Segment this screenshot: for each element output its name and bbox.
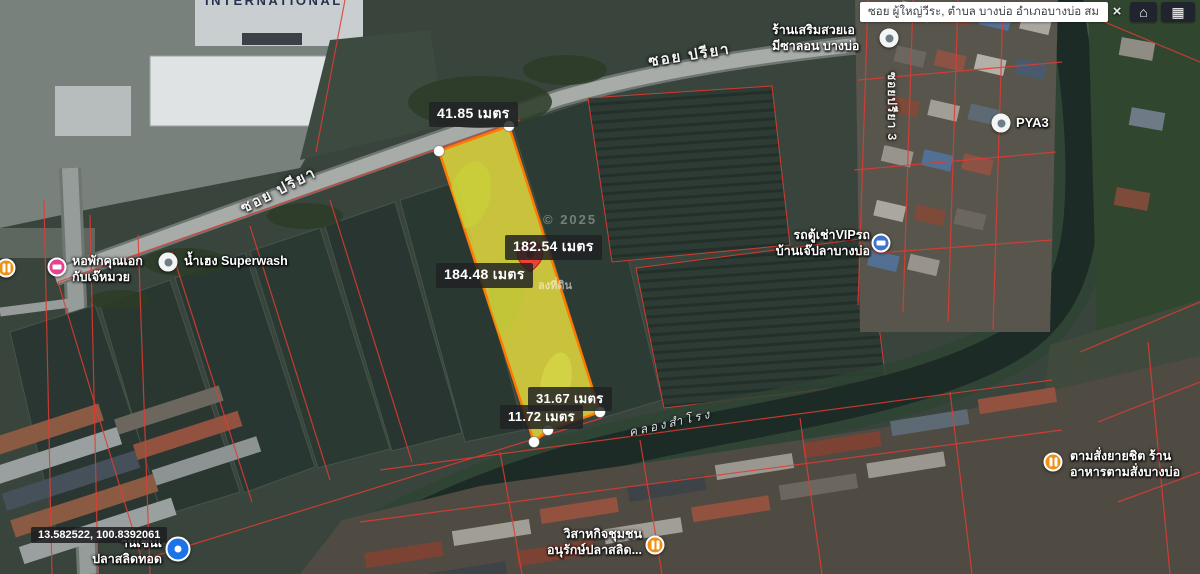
home-button[interactable]: ⌂ <box>1130 2 1157 22</box>
salon-marker-icon[interactable] <box>880 29 899 48</box>
van-rental-marker-icon[interactable] <box>872 234 891 253</box>
poi-label-line: ปลาสลิดทอด <box>92 552 162 568</box>
poi-label-van-rental[interactable]: รถตู้เช่าVIPรถ บ้านเจ๊ปลาบางบ่อ <box>770 228 870 259</box>
superwash-marker-icon[interactable] <box>159 253 178 272</box>
survey-watermark: ลงที่ดิน <box>538 276 572 294</box>
label-international-building: INTERNATIONAL <box>205 0 343 8</box>
poi-label-restaurant[interactable]: ตามสั่งยายชิต ร้าน อาหารตามสั่งบางบ่อ <box>1070 449 1180 480</box>
poi-label-line: มีซาลอน บางบ่อ <box>772 39 859 55</box>
poi-label-superwash[interactable]: น้ำเฮง Superwash <box>184 254 288 270</box>
imagery-year-watermark: © 2025 <box>543 212 597 227</box>
measurement-top-edge: 41.85 เมตร <box>429 102 518 127</box>
poi-label-line: ร้านเสริมสวยเอ <box>772 23 859 39</box>
clear-search-icon[interactable]: × <box>1108 2 1126 22</box>
poi-label-dormitory[interactable]: หอพักคุณเอก กับเจ๊หมวย <box>72 254 143 285</box>
poi-label-line: ตามสั่งยายชิต ร้าน <box>1070 449 1180 465</box>
poi-label-line: รถตู้เช่าVIPรถ <box>770 228 870 244</box>
coordinates-chip: 13.582522, 100.8392061 <box>31 527 167 543</box>
measurement-bottom-edge-2: 11.72 เมตร <box>500 405 583 429</box>
apps-grid-button[interactable]: ▦ <box>1161 2 1195 22</box>
shopping-marker-icon[interactable] <box>166 537 191 562</box>
road-label-soi-priya-3: ซอยปรียา 3 <box>882 72 901 141</box>
poi-label-line: อนุรักษ์ปลาสลิด... <box>547 543 642 559</box>
village-east <box>843 0 1058 332</box>
search-input[interactable] <box>860 2 1108 22</box>
poi-label-line: วิสาหกิจชุมชน <box>547 527 642 543</box>
dormitory-marker-icon[interactable] <box>48 258 67 277</box>
grid-icon: ▦ <box>1171 4 1184 21</box>
map-viewport[interactable]: INTERNATIONAL ซอย ปรียา ซอย ปรียา ซอยปรี… <box>0 0 1200 574</box>
home-icon: ⌂ <box>1139 4 1147 20</box>
community-enterprise-marker-icon[interactable] <box>646 536 665 555</box>
restaurant-marker-icon[interactable] <box>1044 453 1063 472</box>
measurement-left-edge: 184.48 เมตร <box>436 263 533 288</box>
poi-label-salon[interactable]: ร้านเสริมสวยเอ มีซาลอน บางบ่อ <box>772 23 859 54</box>
satellite-imagery[interactable] <box>0 0 1200 574</box>
poi-label-line: บ้านเจ๊ปลาบางบ่อ <box>770 244 870 260</box>
poi-label-line: กับเจ๊หมวย <box>72 270 143 286</box>
poi-label-pya3[interactable]: PYA3 <box>1016 115 1049 131</box>
poi-label-community-enterprise[interactable]: วิสาหกิจชุมชน อนุรักษ์ปลาสลิด... <box>547 527 642 558</box>
pya3-marker-icon[interactable] <box>992 114 1011 133</box>
measurement-right-edge: 182.54 เมตร <box>505 235 602 260</box>
poi-label-line: หอพักคุณเอก <box>72 254 143 270</box>
poi-label-line: อาหารตามสั่งบางบ่อ <box>1070 465 1180 481</box>
